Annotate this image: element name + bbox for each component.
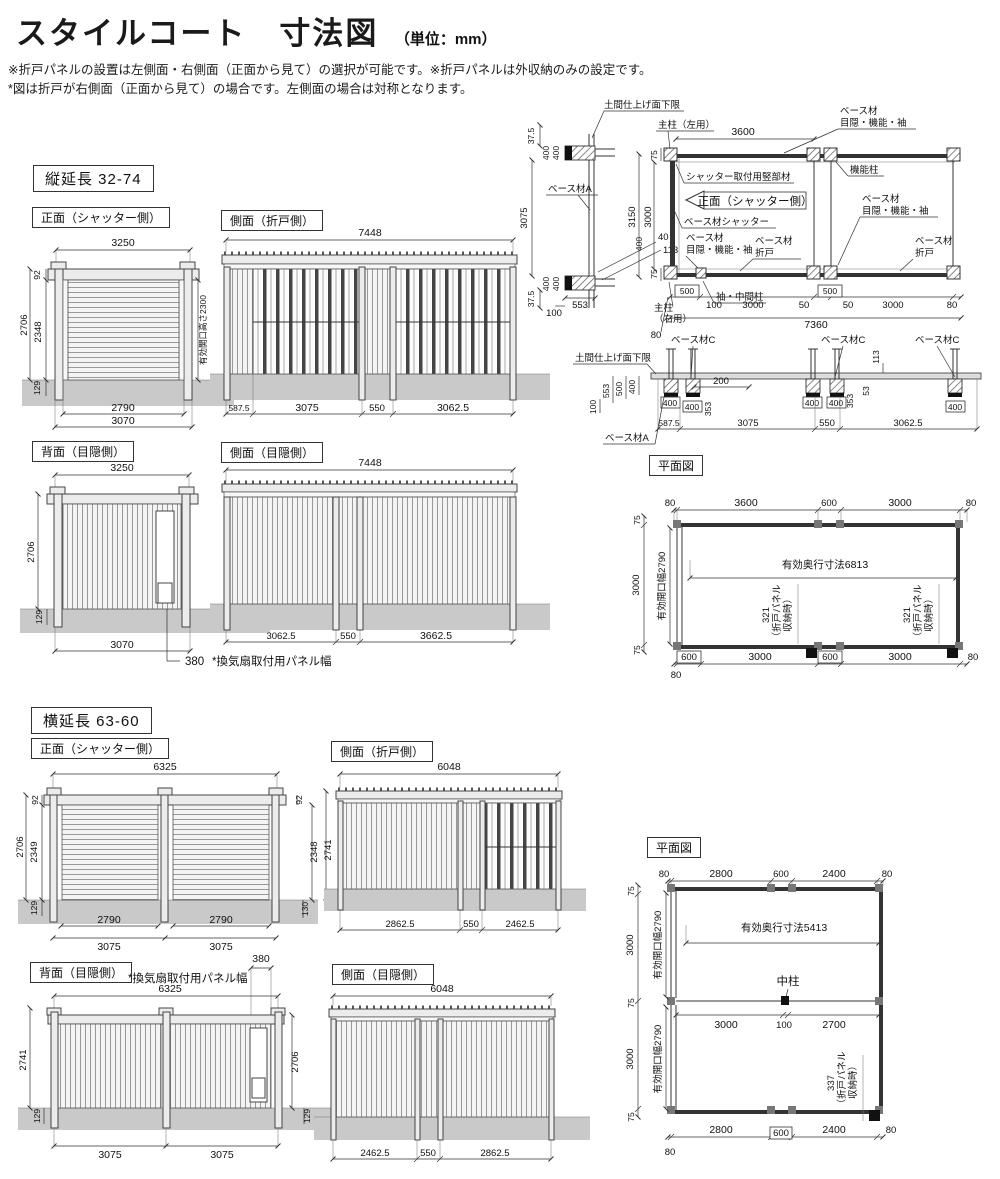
dim-label: 400 bbox=[829, 398, 843, 408]
section-label-tate: 縦延長 32-74 bbox=[33, 165, 154, 192]
dim-label: 2862.5 bbox=[385, 919, 414, 930]
part-label: *換気扇取付用パネル幅 bbox=[128, 971, 247, 985]
dim-label: 380 bbox=[252, 953, 270, 965]
dim-label: 129 bbox=[302, 1109, 312, 1123]
dim-label: 80 bbox=[947, 300, 958, 311]
dim-label: 3000 bbox=[714, 1019, 738, 1031]
svg-text:321: 321 bbox=[761, 607, 772, 623]
dim-label: 2790 bbox=[111, 402, 135, 414]
drawing-side-fold-2: 6048 2862.5 550 2462.5 bbox=[314, 752, 586, 964]
dim-label: 2790 bbox=[97, 914, 121, 926]
dim-label: 2400 bbox=[822, 868, 846, 880]
part-label: 中柱 bbox=[777, 974, 800, 988]
dim-label: 3062.5 bbox=[266, 631, 295, 642]
part-label: 機能柱 bbox=[850, 164, 879, 176]
dim-label: 550 bbox=[463, 919, 479, 930]
part-label: 目隠・機能・袖 bbox=[840, 117, 907, 129]
dim-label: 80 bbox=[886, 1125, 897, 1136]
dim-label: 75 bbox=[626, 998, 636, 1008]
dim-label: 3662.5 bbox=[420, 630, 452, 642]
dim-label: 80 bbox=[966, 498, 977, 509]
dim-label: 129 bbox=[34, 610, 44, 624]
part-label: 目隠・機能・袖 bbox=[862, 205, 929, 217]
dim-label: 6048 bbox=[430, 983, 454, 995]
part-label: 主柱 bbox=[654, 302, 674, 314]
dim-label: 7448 bbox=[358, 227, 382, 239]
dim-label: 3000 bbox=[625, 1048, 636, 1069]
dimension-drawing-page: スタイルコート 寸法図 （単位：mm） ※折戸パネルの設置は左側面・右側面（正面… bbox=[0, 0, 1000, 1179]
svg-text:（折戸パネル: （折戸パネル bbox=[836, 1051, 848, 1109]
drawing-side-privacy-2: 6048 2462.5 550 2862.5 bbox=[314, 982, 590, 1179]
dim-label: 400 bbox=[627, 380, 637, 394]
dim-label: 550 bbox=[369, 403, 385, 414]
drawing-plan-2: 80 2800 600 2400 80 有効奥行寸法5413 中柱 3000 1… bbox=[626, 833, 1000, 1179]
part-label: ベース材C bbox=[915, 334, 960, 346]
dim-label: 75 bbox=[626, 1112, 636, 1122]
svg-text:337: 337 bbox=[826, 1075, 837, 1091]
dim-label: 129 bbox=[32, 1109, 42, 1123]
dim-label: 550 bbox=[340, 631, 356, 642]
part-label: ベース材C bbox=[821, 334, 866, 346]
dim-label: 2706 bbox=[290, 1051, 301, 1072]
dim-label: 3000 bbox=[625, 934, 636, 955]
dim-label: 92 bbox=[32, 270, 42, 280]
dim-label: 有効開口幅2790 bbox=[656, 552, 668, 621]
dim-label: 3070 bbox=[110, 639, 134, 651]
dim-label: 2700 bbox=[822, 1019, 846, 1031]
part-label: 目隠・機能・袖 bbox=[686, 244, 753, 256]
dim-label: 353 bbox=[703, 402, 713, 416]
dim-label: 有効開口幅2790 bbox=[652, 1025, 664, 1094]
dim-label: 75 bbox=[649, 269, 659, 279]
dim-label: 130 bbox=[300, 902, 310, 916]
dim-label: 500 bbox=[614, 382, 624, 396]
note-line-2: *図は折戸が右側面（正面から見て）の場合です。左側面の場合は対称となります。 bbox=[8, 79, 473, 99]
dim-label: 600 bbox=[773, 869, 789, 880]
dim-label: 7448 bbox=[358, 457, 382, 469]
dim-label: 400 bbox=[948, 402, 962, 412]
dim-label: 600 bbox=[681, 652, 697, 663]
dim-label: 400 bbox=[685, 402, 699, 412]
dim-label: 有効開口幅2790 bbox=[652, 911, 664, 980]
dim-label: 353 bbox=[845, 394, 855, 408]
dim-label: 2349 bbox=[29, 841, 40, 862]
dim-label: 2862.5 bbox=[480, 1148, 509, 1159]
dim-label: 37.5 bbox=[526, 127, 536, 144]
dim-label: 3000 bbox=[643, 206, 654, 227]
part-label: ベース材C bbox=[671, 334, 716, 346]
part-label: ベース材A bbox=[548, 183, 593, 195]
part-label: シャッター取付用竪部材 bbox=[686, 171, 791, 183]
dim-label: 3600 bbox=[734, 497, 758, 509]
dim-label: 129 bbox=[29, 901, 39, 915]
page-title: スタイルコート 寸法図 bbox=[16, 16, 378, 51]
dim-label: 100 bbox=[588, 400, 598, 414]
svg-text:収納時）: 収納時） bbox=[782, 594, 794, 632]
drawing-front-shutter-1: 3250 92 2706 2348 129 有効開口高さ2300 2790 30… bbox=[22, 230, 234, 435]
dim-label: 80 bbox=[968, 652, 979, 663]
unit-note: （単位：mm） bbox=[395, 31, 497, 48]
dim-label: 200 bbox=[713, 376, 729, 387]
dim-label: 3000 bbox=[748, 651, 772, 663]
dim-label: 3000 bbox=[742, 300, 763, 311]
dim-label: 600 bbox=[821, 498, 837, 509]
part-label: ベース材 bbox=[686, 232, 724, 244]
dim-label: 2790 bbox=[209, 914, 233, 926]
part-label: 主柱（左用） bbox=[658, 119, 715, 131]
dim-label: 3150 bbox=[627, 206, 638, 227]
svg-text:（折戸パネル: （折戸パネル bbox=[912, 584, 924, 642]
part-label: ベース材シャッター bbox=[684, 216, 769, 228]
drawing-frame-plan-detail: 土間仕上げ面下限 37.5 400 400 3075 ベース材A 400 40 … bbox=[518, 92, 1000, 352]
dim-label: 50 bbox=[799, 300, 810, 311]
dim-label: 75 bbox=[632, 645, 642, 655]
dim-label: 2741 bbox=[18, 1049, 29, 1070]
dim-label: 3070 bbox=[111, 415, 135, 427]
part-label: 土間仕上げ面下限 bbox=[575, 352, 652, 364]
dim-label: 53 bbox=[861, 386, 871, 396]
dim-label: 400 bbox=[541, 277, 551, 291]
dim-label: 75 bbox=[626, 886, 636, 896]
part-label: 折戸 bbox=[915, 247, 934, 259]
part-label: 土間仕上げ面下限 bbox=[604, 99, 681, 111]
dim-label: 40 bbox=[658, 232, 669, 243]
dim-label: 500 bbox=[680, 286, 694, 296]
dim-label: 80 bbox=[665, 498, 676, 509]
dim-label: 600 bbox=[822, 652, 838, 663]
dim-label: 400 bbox=[541, 146, 551, 160]
dim-label: 3075 bbox=[295, 402, 319, 414]
dim-label: 2706 bbox=[15, 836, 26, 857]
dim-label: 2348 bbox=[33, 321, 44, 342]
part-label: ベース材A bbox=[605, 432, 650, 444]
dim-label: 3075 bbox=[98, 1149, 122, 1161]
dim-label: 37.5 bbox=[526, 290, 536, 307]
dim-label: 2400 bbox=[822, 1124, 846, 1136]
dim-label: 3062.5 bbox=[893, 418, 922, 429]
part-label: （右用） bbox=[654, 313, 692, 325]
dim-label: 有効奥行寸法6813 bbox=[782, 558, 869, 571]
dim-label: 50 bbox=[843, 300, 854, 311]
dim-label: 587.5 bbox=[228, 403, 250, 413]
dim-label: 400 bbox=[551, 277, 561, 291]
svg-text:収納時）: 収納時） bbox=[923, 594, 935, 632]
dim-label: 100 bbox=[776, 1020, 792, 1031]
dim-label: 553 bbox=[601, 384, 611, 398]
dim-label: 有効開口高さ2300 bbox=[198, 295, 208, 365]
dim-label: 75 bbox=[632, 515, 642, 525]
dim-label: 3600 bbox=[731, 126, 755, 138]
drawing-side-privacy-1: 7448 3062.5 550 3662.5 bbox=[210, 452, 550, 652]
panel-label-front-1: 正面（シャッター側） bbox=[32, 207, 170, 228]
dim-label: 6325 bbox=[158, 983, 182, 995]
part-label: ベース材 bbox=[915, 235, 953, 247]
dim-label: 2706 bbox=[26, 541, 37, 562]
dim-label: 553 bbox=[572, 300, 588, 311]
dim-label: 100 bbox=[706, 300, 722, 311]
dim-label: 80 bbox=[665, 1147, 676, 1158]
part-label: ベース材 bbox=[755, 235, 793, 247]
svg-text:321: 321 bbox=[902, 607, 913, 623]
part-label: 折戸 bbox=[755, 247, 774, 259]
dim-label: 6325 bbox=[153, 761, 177, 773]
drawing-plan-1: 80 3600 600 3000 80 有効奥行寸法6813 75 3000 7… bbox=[630, 452, 1000, 692]
dim-label: 400 bbox=[663, 398, 677, 408]
dim-label: 2706 bbox=[19, 314, 30, 335]
dim-label: 380 bbox=[185, 656, 204, 668]
dim-label: 80 bbox=[659, 869, 670, 880]
dim-label: 92 bbox=[30, 795, 40, 805]
dim-label: 75 bbox=[649, 150, 659, 160]
dim-label: 3250 bbox=[111, 237, 135, 249]
dim-label: 3062.5 bbox=[437, 402, 469, 414]
dim-label: 3250 bbox=[110, 462, 134, 474]
dim-label: 有効奥行寸法5413 bbox=[741, 921, 828, 934]
stored-panel-note: 321 （折戸パネル 収納時） bbox=[902, 584, 939, 644]
dim-label: 3075 bbox=[519, 207, 530, 228]
dim-label: 2800 bbox=[709, 868, 733, 880]
svg-text:（折戸パネル: （折戸パネル bbox=[771, 584, 783, 642]
section-label-yoko: 横延長 63-60 bbox=[31, 707, 152, 734]
dim-label: 2462.5 bbox=[505, 919, 534, 930]
drawing-front-shutter-2: 6325 92 2706 2349 129 92 2348 2741 有効開口高… bbox=[18, 752, 363, 958]
part-label: *換気扇取付用パネル幅 bbox=[212, 654, 331, 668]
dim-label: 500 bbox=[823, 286, 837, 296]
drawing-back-privacy-2: 380 *換気扇取付用パネル幅 6325 2741 129 2706 129 3… bbox=[18, 950, 353, 1179]
dim-label: 80 bbox=[882, 869, 893, 880]
dim-label: 100 bbox=[546, 308, 562, 319]
drawing-foundation-section: 土間仕上げ面下限 ベース材C ベース材C ベース材C 553 500 400 1… bbox=[563, 333, 1000, 453]
dim-label: 92 bbox=[294, 795, 304, 805]
stored-panel-note: 321 （折戸パネル 収納時） bbox=[761, 584, 798, 644]
dim-label: 6048 bbox=[437, 761, 461, 773]
dim-label: 2800 bbox=[709, 1124, 733, 1136]
dim-label: 3000 bbox=[882, 300, 903, 311]
dim-label: 400 bbox=[805, 398, 819, 408]
dim-label: 587.5 bbox=[658, 418, 680, 428]
part-label: ベース材 bbox=[840, 105, 878, 117]
dim-label: 3075 bbox=[210, 1149, 234, 1161]
dim-label: 550 bbox=[420, 1148, 436, 1159]
part-label: ベース材 bbox=[862, 193, 900, 205]
dim-label: 2462.5 bbox=[360, 1148, 389, 1159]
dim-label: 3075 bbox=[737, 418, 758, 429]
dim-label: 7360 bbox=[804, 319, 828, 331]
dim-label: 80 bbox=[671, 670, 682, 681]
drawing-side-fold-1: 7448 587.5 3075 550 3062.5 bbox=[210, 222, 550, 437]
svg-text:収納時）: 収納時） bbox=[847, 1061, 859, 1099]
dim-label: 400 bbox=[551, 146, 561, 160]
note-line-1: ※折戸パネルの設置は左側面・右側面（正面から見て）の選択が可能です。※折戸パネル… bbox=[8, 60, 651, 80]
dim-label: 3000 bbox=[888, 497, 912, 509]
dim-label: 129 bbox=[32, 381, 42, 395]
part-label: 正面（シャッター側） bbox=[698, 195, 813, 208]
dim-label: 113 bbox=[871, 350, 881, 364]
dim-label: 600 bbox=[773, 1128, 789, 1139]
dim-label: 3000 bbox=[888, 651, 912, 663]
dim-label: 3000 bbox=[631, 574, 642, 595]
header: スタイルコート 寸法図 （単位：mm） bbox=[16, 8, 497, 53]
dim-label: 550 bbox=[819, 418, 835, 429]
